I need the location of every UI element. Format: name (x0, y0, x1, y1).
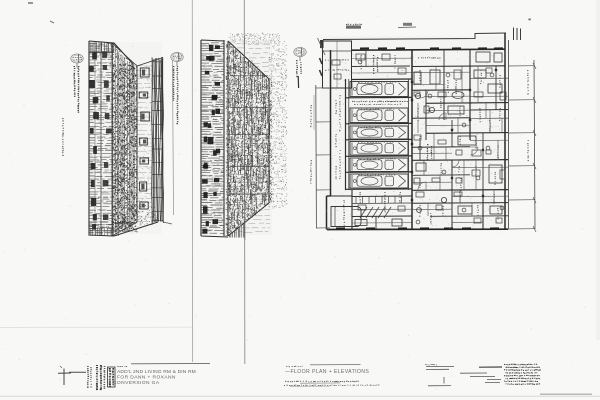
svg-text:FOR DANN + ROXANN: FOR DANN + ROXANN (117, 374, 176, 380)
svg-text:CONVERSION GA: CONVERSION GA (113, 380, 160, 386)
svg-text:ADD'L 2ND LIVING RM & DIN RM: ADD'L 2ND LIVING RM & DIN RM (117, 369, 196, 375)
